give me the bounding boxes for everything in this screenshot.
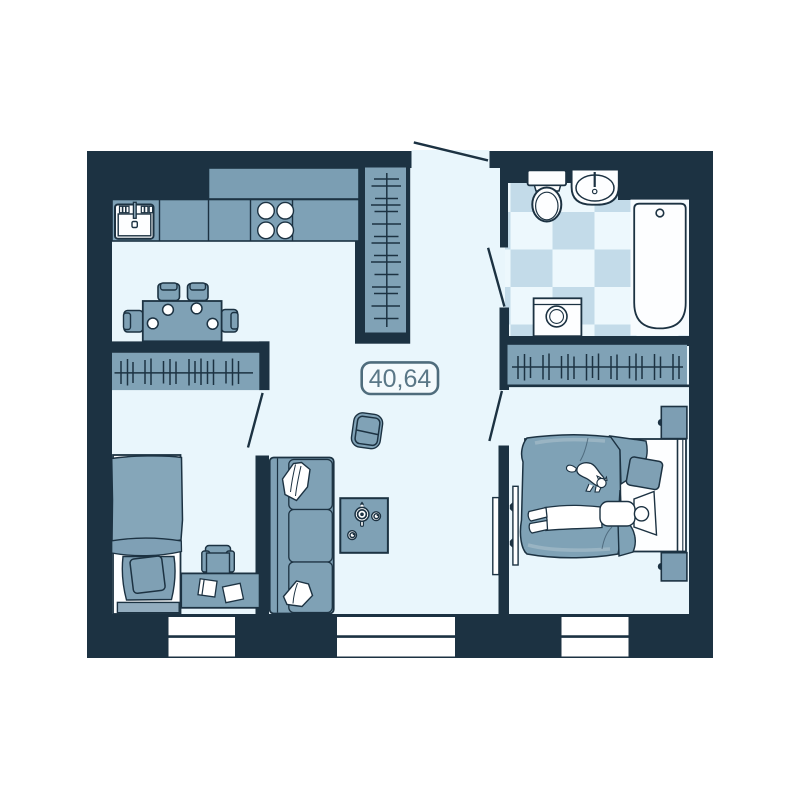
svg-text:40,64: 40,64: [369, 365, 432, 393]
